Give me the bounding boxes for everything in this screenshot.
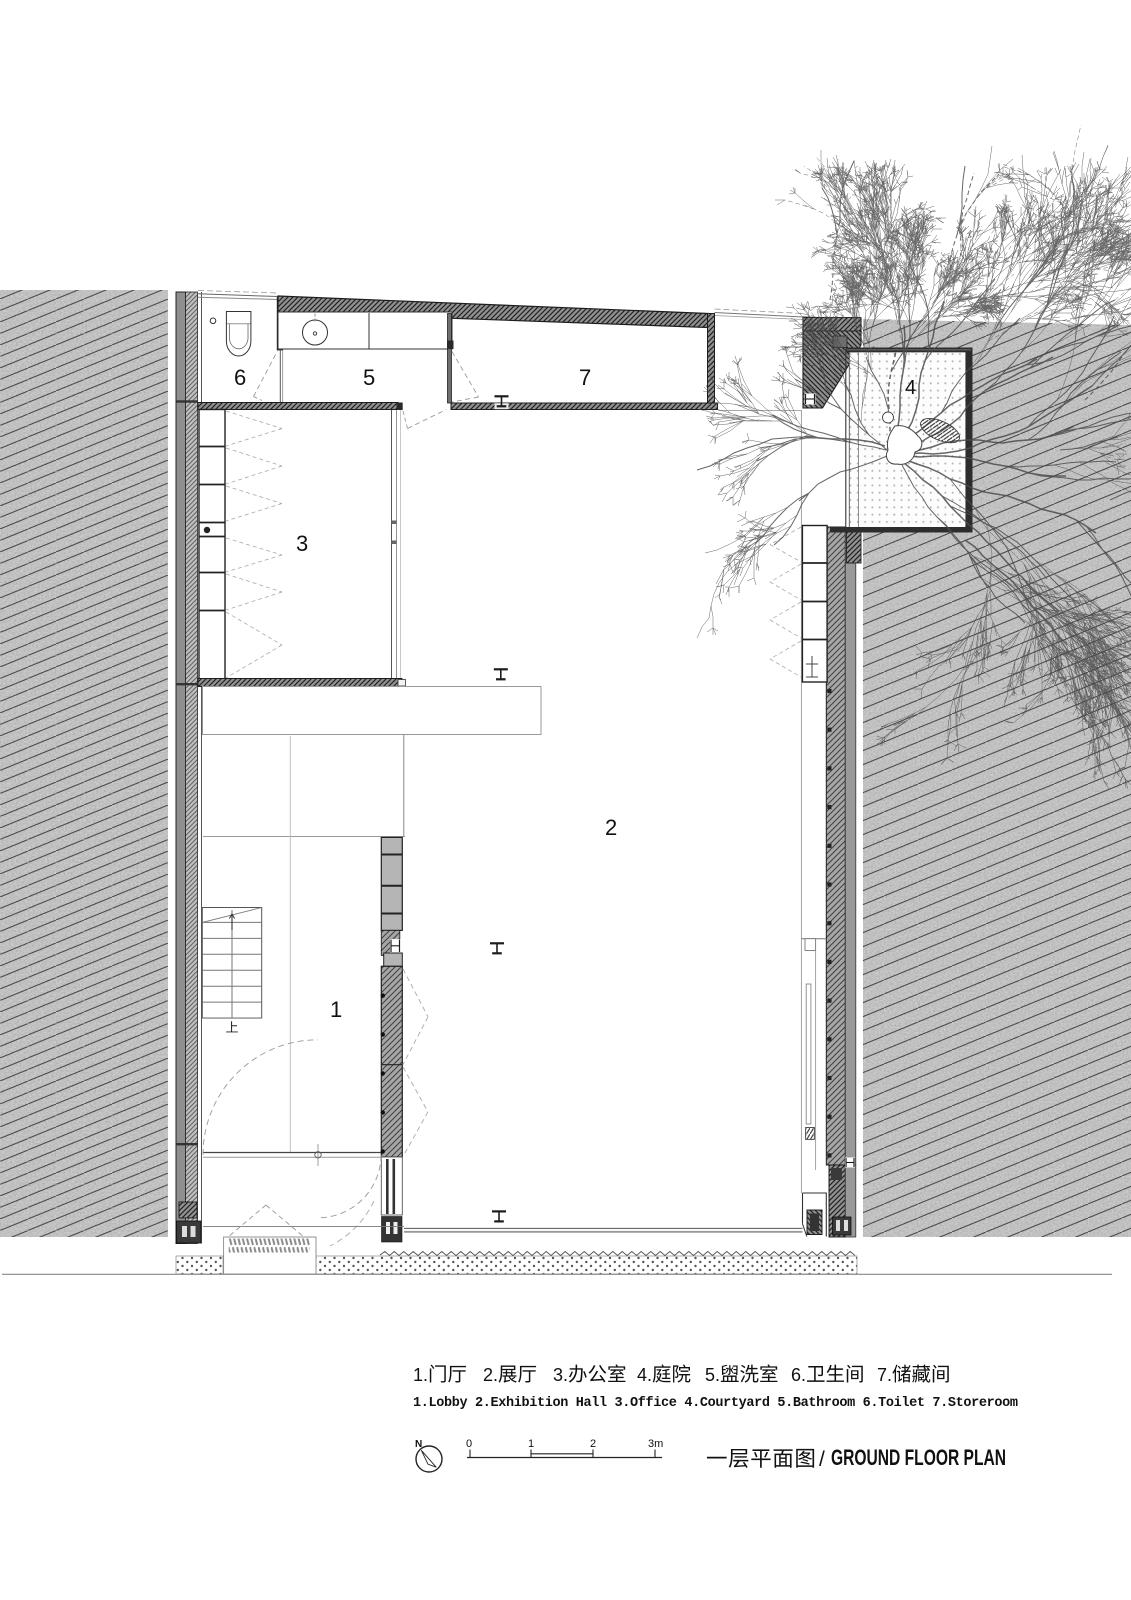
svg-text:5: 5	[363, 365, 375, 390]
svg-text:1.: 1.	[413, 1365, 428, 1385]
svg-text:7: 7	[579, 365, 591, 390]
svg-text:3: 3	[296, 531, 308, 556]
svg-text:2: 2	[590, 1438, 596, 1450]
svg-text:1: 1	[330, 997, 342, 1022]
svg-text:1: 1	[528, 1438, 534, 1450]
svg-text:/: /	[819, 1448, 825, 1471]
svg-text:1.Lobby 2.Exhibition Hall: 1.Lobby 2.Exhibition Hall 3.Office 4.Cou…	[413, 1396, 1018, 1411]
svg-text:7.: 7.	[877, 1365, 892, 1385]
svg-text:4: 4	[905, 377, 916, 399]
svg-text:2.: 2.	[483, 1365, 498, 1385]
svg-text:3m: 3m	[648, 1438, 663, 1450]
svg-text:6: 6	[234, 365, 246, 390]
svg-text:3.: 3.	[553, 1365, 568, 1385]
svg-text:4.: 4.	[637, 1365, 652, 1385]
svg-text:5.: 5.	[705, 1365, 720, 1385]
svg-text:6.: 6.	[791, 1365, 806, 1385]
svg-text:GROUND FLOOR PLAN: GROUND FLOOR PLAN	[831, 1445, 1006, 1470]
svg-text:N: N	[415, 1439, 422, 1450]
svg-text:0: 0	[466, 1438, 472, 1450]
svg-text:2: 2	[605, 815, 617, 840]
